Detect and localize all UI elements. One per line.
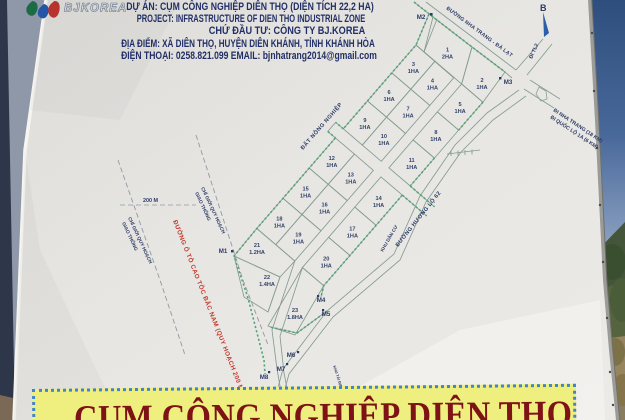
svg-text:1HA: 1HA <box>402 113 413 119</box>
svg-text:1HA: 1HA <box>373 203 384 209</box>
svg-text:21: 21 <box>254 243 260 249</box>
svg-text:16: 16 <box>321 203 327 209</box>
svg-text:10: 10 <box>381 134 387 140</box>
svg-text:1HA: 1HA <box>406 165 417 171</box>
svg-text:1.4HA: 1.4HA <box>259 282 275 288</box>
svg-text:M8: M8 <box>260 374 269 381</box>
svg-text:23: 23 <box>292 308 298 314</box>
svg-text:1HA: 1HA <box>359 125 370 131</box>
svg-text:20: 20 <box>323 257 329 263</box>
svg-text:9: 9 <box>363 118 366 124</box>
svg-text:2: 2 <box>480 78 483 84</box>
svg-text:1HA: 1HA <box>293 240 304 246</box>
svg-text:18: 18 <box>276 217 282 223</box>
svg-text:1HA: 1HA <box>326 163 337 169</box>
svg-text:6: 6 <box>388 90 391 96</box>
svg-text:8: 8 <box>434 130 437 136</box>
svg-text:1HA: 1HA <box>408 69 419 75</box>
svg-text:12: 12 <box>329 156 335 162</box>
svg-text:19: 19 <box>295 233 301 239</box>
svg-text:1HA: 1HA <box>300 193 311 199</box>
svg-text:5: 5 <box>459 102 462 108</box>
svg-text:M6: M6 <box>287 352 296 359</box>
svg-text:1HA: 1HA <box>321 264 332 270</box>
svg-text:1HA: 1HA <box>347 233 358 239</box>
svg-text:22: 22 <box>264 275 270 281</box>
svg-text:13: 13 <box>348 172 354 178</box>
svg-text:1HA: 1HA <box>378 141 389 147</box>
svg-text:1HA: 1HA <box>427 85 438 91</box>
svg-text:14: 14 <box>375 196 382 202</box>
svg-text:1HA: 1HA <box>345 179 356 185</box>
svg-text:1HA: 1HA <box>454 109 465 115</box>
svg-text:M7: M7 <box>277 366 286 373</box>
svg-text:15: 15 <box>302 186 308 192</box>
svg-text:1HA: 1HA <box>476 85 487 91</box>
svg-text:M3: M3 <box>504 79 513 86</box>
svg-text:M5: M5 <box>322 311 331 318</box>
svg-text:3: 3 <box>412 62 415 68</box>
svg-text:M1: M1 <box>219 248 228 255</box>
svg-text:1HA: 1HA <box>430 137 441 143</box>
svg-text:7: 7 <box>407 106 410 112</box>
svg-text:1.2HA: 1.2HA <box>249 250 265 256</box>
svg-text:200 M: 200 M <box>143 198 158 204</box>
svg-text:1HA: 1HA <box>274 224 285 230</box>
svg-text:17: 17 <box>349 226 355 232</box>
svg-text:M4: M4 <box>317 297 326 304</box>
svg-text:1.8HA: 1.8HA <box>287 315 303 321</box>
svg-text:11: 11 <box>409 158 415 164</box>
svg-text:1HA: 1HA <box>319 210 330 216</box>
svg-text:1HA: 1HA <box>383 97 394 103</box>
